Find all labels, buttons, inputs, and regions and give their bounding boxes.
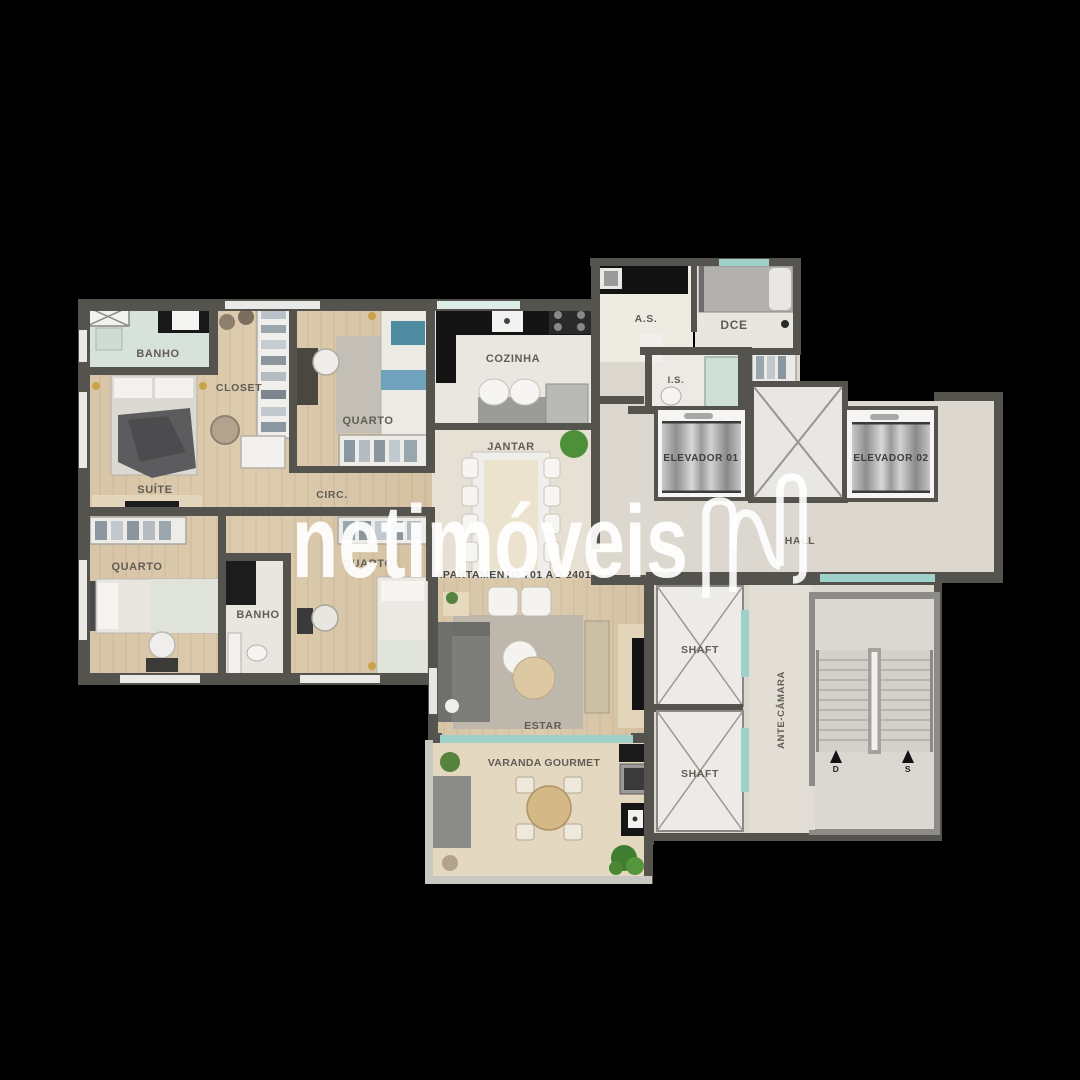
- svg-text:ESTAR: ESTAR: [524, 720, 562, 732]
- svg-text:netimóveis: netimóveis: [292, 485, 688, 600]
- svg-text:D: D: [833, 764, 840, 774]
- svg-text:DCE: DCE: [720, 318, 747, 332]
- svg-text:A.S.: A.S.: [635, 313, 658, 325]
- svg-text:BANHO: BANHO: [136, 348, 179, 360]
- svg-text:ELEVADOR 02: ELEVADOR 02: [853, 453, 928, 464]
- svg-text:I.S.: I.S.: [668, 375, 685, 386]
- svg-text:SHAFT: SHAFT: [681, 768, 719, 780]
- svg-text:JANTAR: JANTAR: [487, 441, 534, 453]
- svg-text:S: S: [905, 764, 911, 774]
- svg-text:QUARTO: QUARTO: [342, 415, 393, 427]
- svg-text:SUÍTE: SUÍTE: [137, 483, 172, 496]
- svg-text:VARANDA GOURMET: VARANDA GOURMET: [488, 757, 601, 769]
- svg-text:ANTE-CÂMARA: ANTE-CÂMARA: [775, 671, 787, 749]
- svg-text:QUARTO: QUARTO: [111, 561, 162, 573]
- svg-text:BANHO: BANHO: [236, 609, 279, 621]
- svg-text:COZINHA: COZINHA: [486, 353, 540, 365]
- svg-text:SHAFT: SHAFT: [681, 644, 719, 656]
- svg-text:CLOSET: CLOSET: [216, 382, 262, 394]
- svg-text:ELEVADOR 01: ELEVADOR 01: [663, 453, 738, 464]
